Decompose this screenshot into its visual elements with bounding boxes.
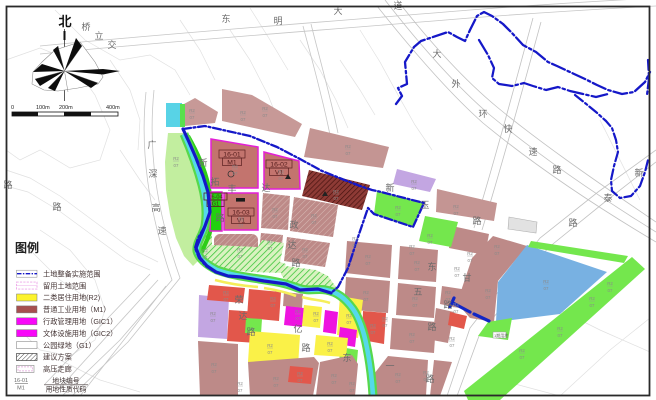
svg-text:07: 07	[271, 303, 276, 308]
svg-text:07: 07	[410, 339, 415, 344]
svg-text:拓: 拓	[210, 176, 219, 187]
svg-text:路: 路	[568, 217, 577, 228]
svg-text:R2: R2	[589, 296, 595, 301]
svg-text:07: 07	[353, 243, 358, 248]
svg-text:R2: R2	[485, 288, 491, 293]
svg-text:R2: R2	[352, 236, 358, 241]
svg-text:07: 07	[446, 297, 451, 302]
svg-text:路: 路	[552, 164, 561, 175]
svg-text:泰: 泰	[603, 192, 612, 203]
svg-text:16-04: 16-04	[208, 195, 222, 201]
svg-text:07: 07	[233, 171, 238, 176]
svg-text:R2: R2	[382, 316, 388, 321]
svg-text:路: 路	[3, 179, 12, 190]
svg-text:速: 速	[528, 147, 537, 157]
svg-text:R2: R2	[238, 216, 244, 221]
svg-text:R2: R2	[240, 110, 246, 115]
svg-text:07: 07	[298, 378, 303, 383]
svg-text:甘: 甘	[462, 272, 471, 283]
svg-text:行政管理用地（GIC1）: 行政管理用地（GIC1）	[43, 317, 117, 326]
svg-text:07: 07	[241, 117, 246, 122]
svg-text:新: 新	[634, 167, 643, 178]
svg-text:道: 道	[393, 0, 402, 11]
svg-text:07: 07	[174, 163, 179, 168]
svg-text:R2: R2	[189, 108, 195, 113]
svg-text:R2: R2	[223, 290, 229, 295]
svg-text:达: 达	[261, 182, 270, 193]
svg-text:07: 07	[608, 288, 613, 293]
svg-text:环: 环	[478, 109, 487, 119]
svg-text:07: 07	[486, 295, 491, 300]
svg-text:高: 高	[151, 202, 160, 213]
svg-text:地块编号: 地块编号	[52, 376, 79, 385]
svg-text:路: 路	[215, 212, 224, 223]
svg-text:立: 立	[94, 30, 103, 41]
svg-text:R2: R2	[202, 248, 208, 253]
svg-text:丰: 丰	[227, 183, 236, 194]
svg-text:R2: R2	[557, 326, 563, 331]
svg-text:07: 07	[203, 255, 208, 260]
svg-text:07: 07	[334, 196, 339, 201]
svg-text:07: 07	[468, 258, 473, 263]
svg-text:R2: R2	[395, 372, 401, 377]
svg-text:公园绿地（G1）: 公园绿地（G1）	[43, 341, 96, 350]
svg-text:07: 07	[268, 246, 273, 251]
svg-text:07: 07	[410, 251, 415, 256]
svg-text:R2: R2	[427, 233, 433, 238]
svg-text:桥: 桥	[81, 21, 90, 32]
svg-text:R2: R2	[409, 244, 415, 249]
svg-text:R2: R2	[453, 204, 459, 209]
svg-text:政: 政	[289, 219, 298, 230]
svg-text:07: 07	[424, 377, 429, 382]
svg-text:达: 达	[287, 239, 296, 250]
svg-text:07: 07	[347, 320, 352, 325]
svg-text:交: 交	[107, 39, 116, 50]
svg-text:07: 07	[274, 383, 279, 388]
svg-text:建议方案: 建议方案	[43, 353, 72, 362]
svg-text:R2: R2	[409, 332, 415, 337]
svg-text:07: 07	[364, 297, 369, 302]
svg-text:路: 路	[427, 321, 436, 332]
svg-text:07: 07	[312, 220, 317, 225]
svg-text:200m: 200m	[59, 105, 73, 111]
svg-text:07: 07	[314, 318, 319, 323]
svg-text:R2: R2	[237, 381, 243, 386]
svg-text:R2: R2	[453, 302, 459, 307]
svg-text:07: 07	[303, 254, 308, 259]
svg-text:R2: R2	[262, 106, 268, 111]
svg-text:R2: R2	[445, 290, 451, 295]
svg-text:07: 07	[558, 333, 563, 338]
svg-text:R2: R2	[519, 348, 525, 353]
svg-text:07: 07	[296, 316, 301, 321]
svg-text:16-01: 16-01	[14, 378, 28, 384]
svg-text:东: 东	[342, 352, 351, 363]
svg-text:R2: R2	[412, 296, 418, 301]
svg-text:07: 07	[332, 380, 337, 385]
svg-text:16-02: 16-02	[270, 162, 288, 169]
svg-text:速: 速	[157, 226, 166, 236]
svg-text:07: 07	[412, 186, 417, 191]
svg-text:07: 07	[263, 113, 268, 118]
svg-text:07: 07	[454, 211, 459, 216]
svg-text:R2: R2	[607, 281, 613, 286]
svg-text:07: 07	[238, 254, 243, 259]
svg-text:广: 广	[147, 139, 156, 150]
svg-text:快: 快	[503, 123, 512, 134]
svg-text:07: 07	[328, 348, 333, 353]
svg-text:二类居住用地(R2): 二类居住用地(R2)	[43, 293, 100, 302]
svg-text:玉: 玉	[420, 200, 429, 210]
svg-text:R2: R2	[365, 254, 371, 259]
svg-text:07: 07	[350, 388, 355, 393]
svg-text:R2: R2	[370, 323, 376, 328]
svg-text:07: 07	[239, 223, 244, 228]
svg-text:07: 07	[268, 350, 273, 355]
svg-text:07: 07	[224, 297, 229, 302]
svg-text:0: 0	[11, 105, 14, 111]
svg-text:东: 东	[427, 261, 436, 272]
svg-text:R2: R2	[467, 251, 473, 256]
svg-text:土地整备实施范围: 土地整备实施范围	[43, 269, 101, 278]
svg-text:留用土地范围: 留用土地范围	[43, 281, 86, 290]
svg-text:R2: R2	[270, 296, 276, 301]
svg-text:普通工业用地（M1）: 普通工业用地（M1）	[43, 305, 111, 314]
svg-text:07: 07	[279, 176, 284, 181]
svg-text:路: 路	[246, 326, 255, 337]
svg-text:07: 07	[190, 115, 195, 120]
svg-text:大: 大	[432, 48, 441, 59]
svg-text:亿: 亿	[293, 323, 302, 334]
svg-text:R2: R2	[211, 362, 217, 367]
svg-text:07: 07	[212, 369, 217, 374]
svg-text:R2: R2	[173, 156, 179, 161]
svg-text:R2: R2	[302, 247, 308, 252]
svg-text:R2: R2	[267, 343, 273, 348]
svg-text:外: 外	[451, 78, 460, 89]
svg-text:R2: R2	[297, 371, 303, 376]
svg-text:深: 深	[148, 169, 157, 179]
svg-text:07: 07	[413, 303, 418, 308]
svg-text:R2: R2	[237, 247, 243, 252]
svg-text:北: 北	[58, 14, 71, 29]
svg-text:R2: R2	[327, 341, 333, 346]
svg-text:用地性质代码: 用地性质代码	[46, 385, 87, 394]
svg-text:新: 新	[385, 182, 394, 193]
svg-text:R2: R2	[278, 169, 284, 174]
svg-text:07: 07	[396, 379, 401, 384]
svg-text:R2: R2	[543, 279, 549, 284]
svg-text:R2: R2	[395, 205, 401, 210]
svg-text:R2: R2	[295, 309, 301, 314]
svg-text:R2: R2	[232, 164, 238, 169]
svg-text:1期用地: 1期用地	[494, 332, 508, 338]
svg-text:07: 07	[273, 214, 278, 219]
svg-text:R2: R2	[363, 290, 369, 295]
svg-text:达: 达	[238, 310, 247, 321]
svg-text:M1: M1	[17, 386, 25, 392]
svg-text:明: 明	[273, 16, 282, 26]
svg-text:R2: R2	[449, 336, 455, 341]
svg-text:R2: R2	[267, 239, 273, 244]
svg-text:R2: R2	[272, 207, 278, 212]
svg-text:100m: 100m	[36, 105, 50, 111]
svg-text:R2: R2	[346, 313, 352, 318]
svg-text:东: 东	[221, 13, 230, 24]
svg-text:R2: R2	[454, 266, 460, 271]
svg-text:R2: R2	[494, 244, 500, 249]
svg-text:07: 07	[455, 273, 460, 278]
svg-text:07: 07	[428, 240, 433, 245]
svg-text:400m: 400m	[106, 105, 120, 111]
svg-text:R2: R2	[331, 373, 337, 378]
svg-text:R2: R2	[313, 311, 319, 316]
svg-text:07: 07	[544, 286, 549, 291]
svg-text:高压走廊: 高压走廊	[43, 365, 72, 374]
svg-text:07: 07	[238, 388, 243, 393]
svg-text:07: 07	[590, 303, 595, 308]
svg-text:G1: G1	[212, 202, 219, 208]
svg-text:R2: R2	[311, 213, 317, 218]
svg-text:07: 07	[371, 330, 376, 335]
svg-text:R2: R2	[273, 376, 279, 381]
svg-text:路: 路	[301, 342, 310, 353]
svg-text:文体设施用地（GIC2）: 文体设施用地（GIC2）	[43, 329, 117, 338]
svg-text:07: 07	[383, 323, 388, 328]
svg-text:R2: R2	[210, 311, 216, 316]
svg-text:一: 一	[385, 361, 394, 371]
svg-text:07: 07	[415, 267, 420, 272]
svg-text:07: 07	[211, 318, 216, 323]
svg-text:07: 07	[366, 261, 371, 266]
svg-text:路: 路	[472, 215, 481, 226]
svg-text:R2: R2	[423, 370, 429, 375]
svg-text:路: 路	[52, 201, 61, 212]
svg-text:16-01: 16-01	[223, 152, 241, 159]
svg-text:07: 07	[454, 309, 459, 314]
svg-text:R2: R2	[349, 381, 355, 386]
svg-text:07: 07	[495, 251, 500, 256]
svg-text:07: 07	[346, 151, 351, 156]
svg-text:07: 07	[396, 212, 401, 217]
svg-text:07: 07	[450, 343, 455, 348]
svg-text:07: 07	[520, 355, 525, 360]
svg-text:R2: R2	[411, 179, 417, 184]
svg-text:路: 路	[291, 257, 300, 268]
svg-text:图例: 图例	[15, 240, 39, 255]
svg-text:R2: R2	[333, 189, 339, 194]
svg-text:R2: R2	[414, 260, 420, 265]
svg-text:荣: 荣	[234, 294, 243, 305]
svg-text:新: 新	[198, 157, 207, 168]
svg-text:R2: R2	[345, 144, 351, 149]
